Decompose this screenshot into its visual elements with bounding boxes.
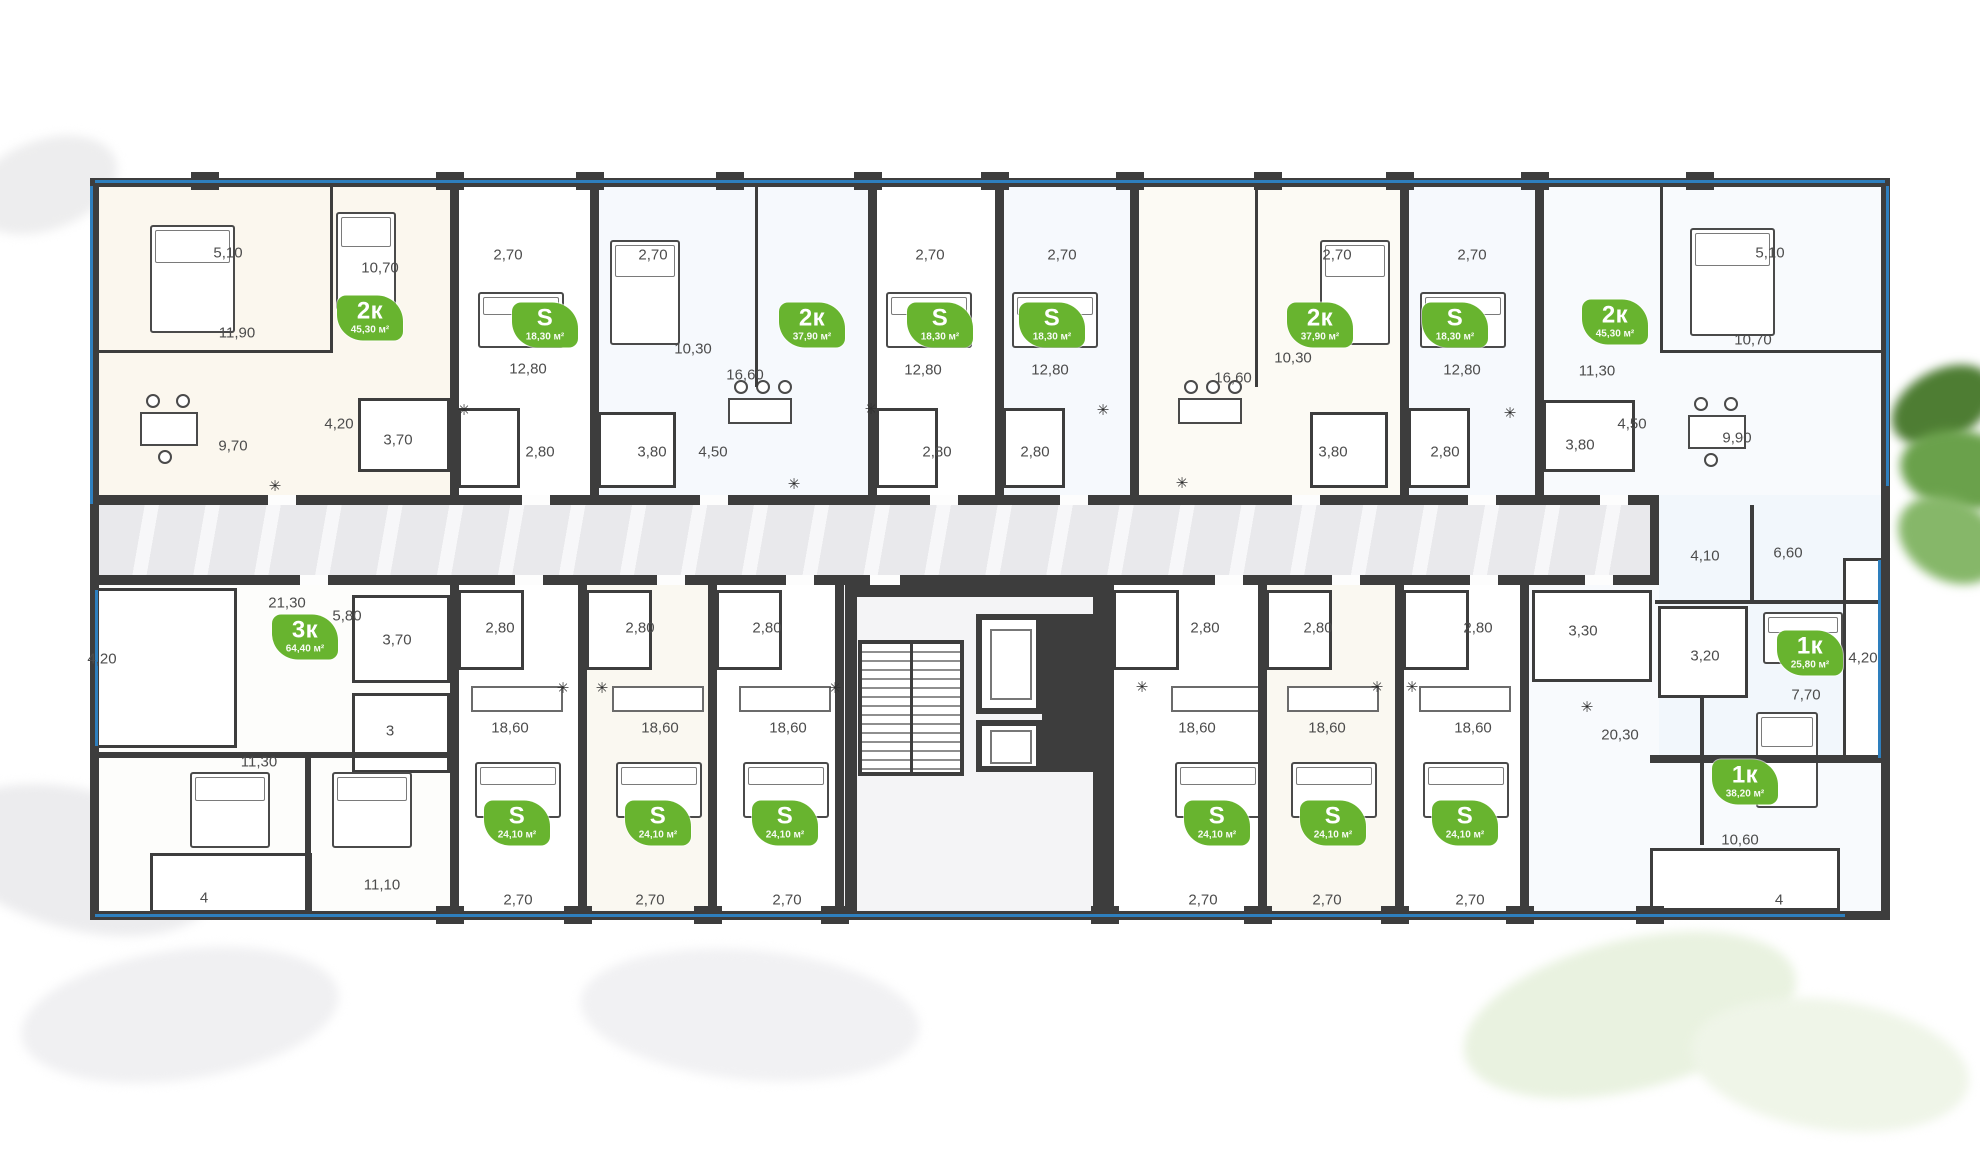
appliance-icon: ✳ — [865, 400, 878, 418]
room-number: 3 — [386, 723, 394, 740]
dimension-label: 2,80 — [1020, 444, 1049, 461]
apartment-type: 3к — [281, 619, 329, 643]
apartment-type: 2к — [1296, 307, 1344, 331]
apartment-badge[interactable]: 2к45,30 м² — [1582, 300, 1648, 345]
dimension-label: 4,50 — [1617, 416, 1646, 433]
dimension-label: 10,70 — [361, 260, 399, 277]
apartment-area: 24,10 м² — [761, 831, 809, 841]
apartment-badge[interactable]: S18,30 м² — [1019, 303, 1085, 348]
apartment-area: 24,10 м² — [493, 831, 541, 841]
appliance-icon: ✳ — [557, 679, 570, 697]
dimension-label: 2,70 — [915, 247, 944, 264]
dimension-label: 3,80 — [637, 444, 666, 461]
appliance-icon: ✳ — [596, 679, 609, 697]
dimension-label: 11,90 — [219, 325, 255, 342]
dimension-label: 12,80 — [509, 361, 547, 378]
apartment-area: 45,30 м² — [1591, 330, 1639, 340]
dimension-label: 2,80 — [1430, 444, 1459, 461]
apartment-area: 18,30 м² — [1028, 333, 1076, 343]
dimension-label: 12,80 — [1031, 362, 1069, 379]
apartment-type: S — [1193, 805, 1241, 829]
apartment-badge[interactable]: 1к38,20 м² — [1712, 760, 1778, 805]
dimension-label: 16,60 — [726, 367, 764, 384]
dimension-label: 20,30 — [1601, 727, 1639, 744]
dimension-label: 18,60 — [491, 720, 529, 737]
dimension-label: 2,70 — [1457, 247, 1486, 264]
dimension-label: 12,80 — [904, 362, 942, 379]
dimension-label: 3,30 — [1568, 623, 1597, 640]
apartment-badge[interactable]: S18,30 м² — [907, 303, 973, 348]
room-number: 4 — [1775, 892, 1783, 909]
dimension-label: 11,10 — [364, 877, 400, 894]
dimension-label: 21,30 — [268, 595, 306, 612]
apartment-type: 2к — [346, 300, 394, 324]
dimension-label: 4,20 — [324, 416, 353, 433]
dimension-label: 12,80 — [1443, 362, 1481, 379]
dimension-label: 2,70 — [503, 892, 532, 909]
apartment-badge[interactable]: S24,10 м² — [1300, 801, 1366, 846]
dimension-label: 18,60 — [1178, 720, 1216, 737]
dimension-label: 2,70 — [772, 892, 801, 909]
appliance-icon: ✳ — [1504, 404, 1517, 422]
dimension-label: 4,20 — [1848, 650, 1877, 667]
dimension-label: 5,10 — [213, 245, 242, 262]
appliance-icon: ✳ — [788, 475, 801, 493]
dimension-label: 2,70 — [1322, 247, 1351, 264]
apartment-type: S — [634, 805, 682, 829]
dimension-label: 4,50 — [698, 444, 727, 461]
dimension-label: 11,30 — [241, 754, 277, 771]
apartment-area: 37,90 м² — [788, 333, 836, 343]
dimension-label: 3,80 — [1318, 444, 1347, 461]
labels-layer: 2к45,30 м²S18,30 м²2к37,90 м²S18,30 м²S1… — [0, 0, 1980, 1172]
dimension-label: 9,70 — [218, 438, 247, 455]
dimension-label: 7,70 — [1791, 687, 1820, 704]
apartment-type: S — [1431, 307, 1479, 331]
dimension-label: 18,60 — [1454, 720, 1492, 737]
dimension-label: 5,80 — [332, 608, 361, 625]
dimension-label: 2,80 — [625, 620, 654, 637]
appliance-icon: ✳ — [1581, 698, 1594, 716]
appliance-icon: ✳ — [1176, 474, 1189, 492]
apartment-type: 2к — [788, 307, 836, 331]
appliance-icon: ✳ — [1097, 401, 1110, 419]
apartment-type: 1к — [1786, 635, 1834, 659]
dimension-label: 3,70 — [382, 632, 411, 649]
appliance-icon: ✳ — [269, 477, 282, 495]
apartment-area: 18,30 м² — [521, 333, 569, 343]
dimension-label: 3,20 — [1690, 648, 1719, 665]
apartment-badge[interactable]: S24,10 м² — [1184, 801, 1250, 846]
dimension-label: 2,80 — [485, 620, 514, 637]
room-number: 4 — [200, 890, 208, 907]
apartment-area: 24,10 м² — [1441, 831, 1489, 841]
dimension-label: 2,70 — [1047, 247, 1076, 264]
apartment-badge[interactable]: S18,30 м² — [512, 303, 578, 348]
appliance-icon: ✳ — [1371, 678, 1384, 696]
apartment-area: 24,10 м² — [634, 831, 682, 841]
dimension-label: 2,80 — [525, 444, 554, 461]
dimension-label: 2,80 — [922, 444, 951, 461]
dimension-label: 4,20 — [87, 651, 116, 668]
dimension-label: 6,60 — [1773, 545, 1802, 562]
dimension-label: 10,30 — [1274, 350, 1312, 367]
dimension-label: 18,60 — [1308, 720, 1346, 737]
dimension-label: 16,60 — [1214, 370, 1252, 387]
dimension-label: 10,70 — [1734, 332, 1772, 349]
apartment-badge[interactable]: 2к37,90 м² — [1287, 303, 1353, 348]
appliance-icon: ✳ — [1136, 678, 1149, 696]
dimension-label: 10,30 — [674, 341, 712, 358]
apartment-badge[interactable]: S24,10 м² — [752, 801, 818, 846]
apartment-area: 37,90 м² — [1296, 333, 1344, 343]
dimension-label: 4,10 — [1690, 548, 1719, 565]
apartment-type: S — [1309, 805, 1357, 829]
apartment-type: S — [761, 805, 809, 829]
apartment-area: 38,20 м² — [1721, 790, 1769, 800]
apartment-badge[interactable]: 1к25,80 м² — [1777, 631, 1843, 676]
apartment-badge[interactable]: 3к64,40 м² — [272, 615, 338, 660]
apartment-type: S — [1441, 805, 1489, 829]
apartment-area: 18,30 м² — [916, 333, 964, 343]
apartment-area: 24,10 м² — [1309, 831, 1357, 841]
dimension-label: 18,60 — [641, 720, 679, 737]
apartment-badge[interactable]: 2к37,90 м² — [779, 303, 845, 348]
dimension-label: 18,60 — [769, 720, 807, 737]
apartment-badge[interactable]: S24,10 м² — [1432, 801, 1498, 846]
apartment-type: S — [1028, 307, 1076, 331]
dimension-label: 2,70 — [1188, 892, 1217, 909]
dimension-label: 2,80 — [1463, 620, 1492, 637]
appliance-icon: ✳ — [829, 679, 842, 697]
appliance-icon: ✳ — [458, 401, 471, 419]
dimension-label: 3,70 — [383, 432, 412, 449]
apartment-badge[interactable]: S24,10 м² — [484, 801, 550, 846]
dimension-label: 5,10 — [1755, 245, 1784, 262]
apartment-type: S — [493, 805, 541, 829]
dimension-label: 2,70 — [1312, 892, 1341, 909]
dimension-label: 2,70 — [1455, 892, 1484, 909]
dimension-label: 9,90 — [1722, 430, 1751, 447]
dimension-label: 10,60 — [1721, 832, 1759, 849]
apartment-badge[interactable]: S18,30 м² — [1422, 303, 1488, 348]
floorplan-canvas: 2к45,30 м²S18,30 м²2к37,90 м²S18,30 м²S1… — [0, 0, 1980, 1172]
apartment-area: 64,40 м² — [281, 645, 329, 655]
dimension-label: 2,80 — [752, 620, 781, 637]
apartment-type: S — [521, 307, 569, 331]
dimension-label: 2,80 — [1190, 620, 1219, 637]
apartment-area: 45,30 м² — [346, 326, 394, 336]
apartment-type: 2к — [1591, 304, 1639, 328]
dimension-label: 2,70 — [493, 247, 522, 264]
apartment-badge[interactable]: S24,10 м² — [625, 801, 691, 846]
dimension-label: 11,30 — [1579, 363, 1615, 380]
dimension-label: 2,70 — [635, 892, 664, 909]
dimension-label: 2,80 — [1303, 620, 1332, 637]
apartment-type: 1к — [1721, 764, 1769, 788]
apartment-area: 18,30 м² — [1431, 333, 1479, 343]
apartment-area: 24,10 м² — [1193, 831, 1241, 841]
dimension-label: 3,80 — [1565, 437, 1594, 454]
apartment-type: S — [916, 307, 964, 331]
apartment-area: 25,80 м² — [1786, 661, 1834, 671]
dimension-label: 2,70 — [638, 247, 667, 264]
appliance-icon: ✳ — [1406, 678, 1419, 696]
apartment-badge[interactable]: 2к45,30 м² — [337, 296, 403, 341]
